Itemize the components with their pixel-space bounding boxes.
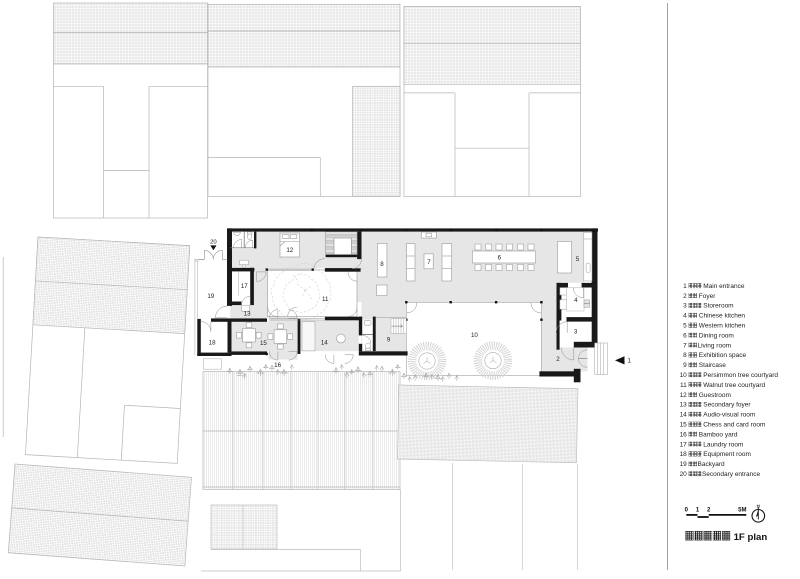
svg-text:9: 9 bbox=[683, 362, 687, 369]
svg-text:13: 13 bbox=[680, 402, 688, 409]
svg-text:1: 1 bbox=[628, 357, 632, 364]
svg-text:15: 15 bbox=[680, 422, 688, 429]
svg-text:9: 9 bbox=[387, 337, 391, 344]
svg-text:15: 15 bbox=[260, 340, 267, 347]
svg-text:5: 5 bbox=[576, 256, 580, 263]
svg-text:4: 4 bbox=[683, 313, 687, 320]
svg-text:11: 11 bbox=[680, 382, 687, 389]
svg-text:Audio-visual room: Audio-visual room bbox=[703, 412, 755, 419]
svg-text:Laundry room: Laundry room bbox=[703, 441, 743, 448]
svg-text:0: 0 bbox=[685, 507, 689, 513]
svg-text:Chinese kitchen: Chinese kitchen bbox=[699, 313, 746, 320]
svg-text:6: 6 bbox=[683, 332, 687, 339]
svg-text:14: 14 bbox=[680, 412, 688, 419]
svg-text:16: 16 bbox=[680, 431, 688, 438]
svg-text:Secondary foyer: Secondary foyer bbox=[703, 402, 751, 409]
svg-text:14: 14 bbox=[321, 340, 328, 347]
svg-text:17: 17 bbox=[241, 283, 248, 290]
svg-text:Storeroom: Storeroom bbox=[703, 303, 733, 310]
svg-text:Chess and card room: Chess and card room bbox=[703, 422, 765, 429]
svg-text:12: 12 bbox=[680, 392, 688, 399]
svg-text:18: 18 bbox=[209, 340, 216, 347]
svg-text:5: 5 bbox=[683, 323, 687, 330]
svg-text:5M: 5M bbox=[738, 507, 746, 513]
svg-text:11: 11 bbox=[322, 296, 329, 303]
svg-text:Foyer: Foyer bbox=[699, 293, 716, 300]
svg-text:2: 2 bbox=[683, 293, 687, 300]
svg-text:2: 2 bbox=[556, 356, 560, 363]
svg-text:13: 13 bbox=[244, 311, 251, 318]
svg-text:Western kitchen: Western kitchen bbox=[699, 323, 746, 330]
svg-text:1: 1 bbox=[696, 507, 700, 513]
svg-text:17: 17 bbox=[680, 441, 688, 448]
svg-text:Equipment room: Equipment room bbox=[703, 451, 751, 458]
svg-text:7: 7 bbox=[683, 342, 687, 349]
svg-text:Main entrance: Main entrance bbox=[703, 283, 745, 290]
svg-text:18: 18 bbox=[680, 451, 688, 458]
svg-text:Secondary entrance: Secondary entrance bbox=[702, 471, 761, 478]
svg-text:Guestroom: Guestroom bbox=[699, 392, 731, 399]
svg-text:3: 3 bbox=[683, 303, 687, 310]
svg-text:12: 12 bbox=[286, 247, 293, 254]
svg-text:16: 16 bbox=[274, 362, 281, 369]
svg-text:Bamboo yard: Bamboo yard bbox=[699, 431, 738, 438]
svg-text:Staircase: Staircase bbox=[699, 362, 726, 369]
svg-text:Living room: Living room bbox=[698, 342, 732, 349]
svg-text:10: 10 bbox=[471, 332, 478, 339]
svg-text:8: 8 bbox=[683, 352, 687, 359]
svg-text:4: 4 bbox=[574, 297, 578, 304]
svg-text:3: 3 bbox=[574, 329, 578, 336]
svg-text:19: 19 bbox=[207, 293, 214, 300]
svg-text:20: 20 bbox=[210, 239, 217, 245]
svg-text:Exhibition space: Exhibition space bbox=[699, 352, 747, 359]
svg-text:Backyard: Backyard bbox=[698, 461, 725, 468]
svg-text:1: 1 bbox=[683, 283, 687, 290]
svg-text:8: 8 bbox=[380, 261, 384, 268]
svg-text:1F plan: 1F plan bbox=[734, 532, 768, 543]
svg-text:6: 6 bbox=[498, 255, 502, 262]
svg-text:19: 19 bbox=[680, 461, 688, 468]
svg-text:10: 10 bbox=[680, 372, 688, 379]
svg-text:Persimmon tree courtyard: Persimmon tree courtyard bbox=[703, 372, 778, 379]
svg-text:20: 20 bbox=[680, 471, 688, 478]
svg-text:Dining room: Dining room bbox=[699, 332, 734, 339]
svg-text:Walnut tree courtyard: Walnut tree courtyard bbox=[703, 382, 765, 389]
svg-text:7: 7 bbox=[427, 259, 431, 266]
svg-text:2: 2 bbox=[707, 507, 711, 513]
